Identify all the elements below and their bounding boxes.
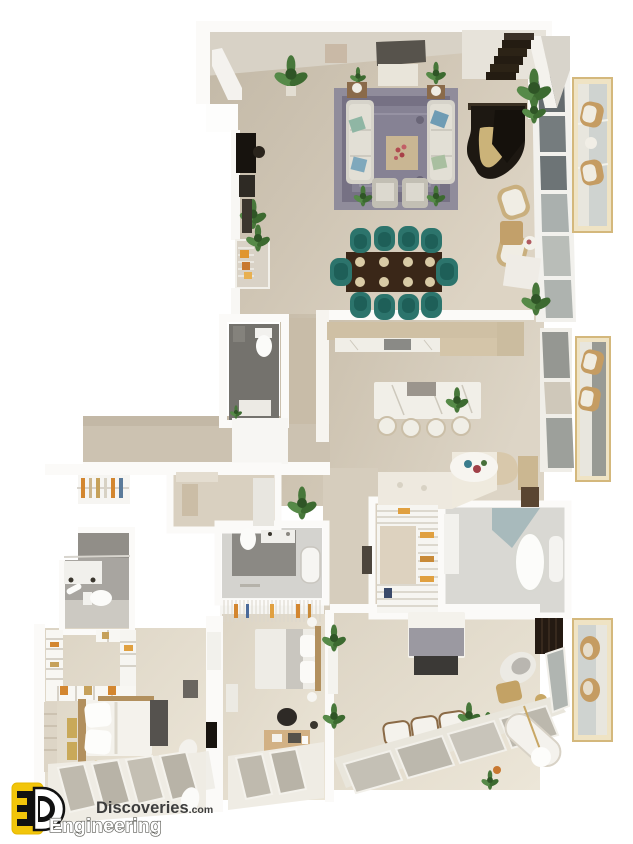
svg-text:Engineering: Engineering bbox=[49, 815, 162, 837]
